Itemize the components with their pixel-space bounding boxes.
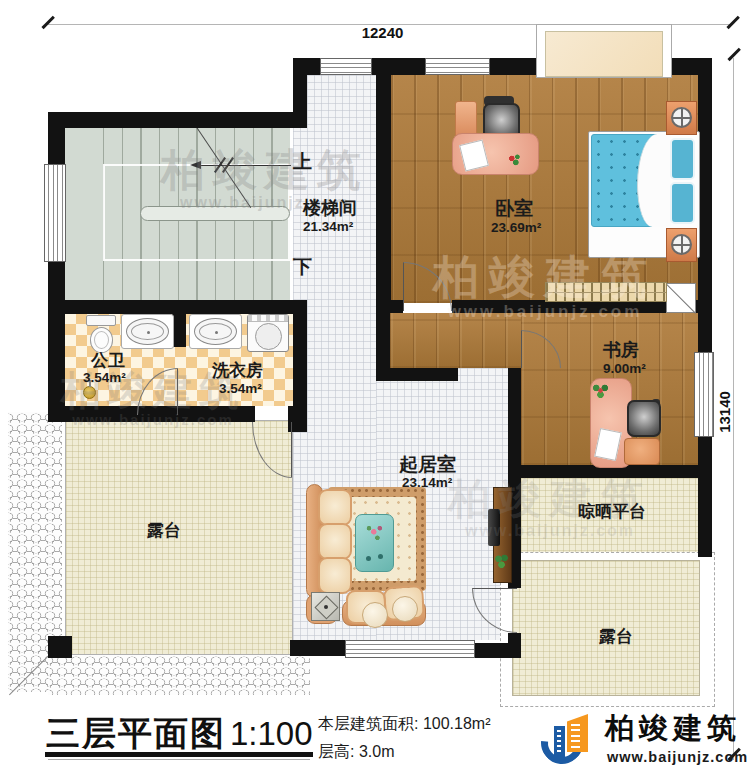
dimension-label-top: 12240 (345, 25, 420, 41)
wall (293, 58, 307, 118)
dimension-line-right (733, 58, 734, 760)
toilet-bowl (90, 327, 113, 353)
room-area-study: 9.00m² (603, 362, 646, 376)
brand-website: www.baijunjz.com (607, 750, 748, 765)
bathroom-sink (126, 318, 169, 345)
building-area-text: 本层建筑面积: 100.18m² (318, 716, 490, 732)
room-area-stairwell: 21.34m² (303, 220, 353, 234)
room-label-living: 起居室 (399, 455, 456, 474)
bay-window-floor (545, 31, 663, 77)
window (694, 352, 714, 437)
brand-name: 柏竣建筑 (605, 714, 741, 743)
window (320, 58, 372, 75)
floor-height-text: 层高: 3.0m (318, 744, 394, 760)
room-label-bedroom: 卧室 (495, 199, 533, 218)
wall (48, 112, 307, 128)
dimension-tick (727, 48, 740, 61)
roof-shingles-bottom (48, 655, 310, 695)
coffee-table (355, 514, 394, 572)
sink-drain (147, 331, 150, 334)
closet-door-leaf (666, 284, 696, 314)
dimension-tick (41, 16, 54, 29)
window (345, 640, 475, 658)
wall (293, 300, 307, 432)
wall (48, 112, 65, 166)
stair-up-label: 上 (293, 152, 312, 171)
wall (698, 58, 712, 314)
wall (376, 368, 458, 381)
logo-glyph (541, 708, 601, 770)
wall (376, 300, 403, 313)
floorplan-canvas: 12240 13140 (0, 0, 750, 781)
corridor-floor (390, 313, 521, 368)
round-pillow (362, 602, 388, 628)
washing-machine (247, 314, 289, 352)
room-label-laundry: 洗衣房 (212, 362, 263, 379)
wall (698, 478, 712, 557)
tv (488, 509, 500, 546)
wall (508, 368, 521, 470)
room-area-living: 23.14m² (402, 476, 452, 490)
wall (48, 314, 65, 420)
room-label-drying-platform: 晾晒平台 (578, 503, 646, 520)
wall (475, 643, 521, 658)
sofa-cushion (318, 523, 352, 560)
table-item-dot (378, 554, 383, 559)
wall (290, 640, 345, 656)
toilet-bowl-inner (94, 331, 109, 349)
room-label-study: 书房 (603, 341, 639, 359)
table-item-dot (366, 556, 371, 561)
window (44, 164, 66, 262)
title-underline-thick (45, 752, 313, 757)
sink-drain (215, 331, 218, 334)
floor-lamp (311, 592, 340, 621)
room-area-bedroom: 23.69m² (491, 221, 541, 235)
round-pillow (392, 596, 418, 622)
logo-building-orange-icon (567, 714, 588, 752)
logo-building-windows (557, 730, 561, 754)
terrace-corner-post (48, 636, 72, 658)
wall (172, 313, 186, 347)
dimension-tick (726, 16, 739, 29)
plan-title-scale: 1:100 (230, 715, 313, 752)
washer-drum (255, 323, 282, 350)
stair-rail (140, 206, 290, 221)
plan-title-text: 三层平面图 (46, 714, 226, 752)
cabinet-plant (494, 552, 509, 569)
study-chair (627, 400, 661, 437)
wall (376, 58, 391, 313)
room-label-terrace-left: 露台 (147, 522, 181, 539)
sofa-cushion (318, 489, 352, 526)
floor-drain-icon (83, 386, 96, 399)
stair-direction-arrow (190, 161, 201, 169)
lamp-bulb (324, 605, 328, 609)
room-area-laundry: 3.54m² (219, 382, 262, 396)
wall (698, 314, 712, 352)
room-label-terrace-right: 露台 (599, 628, 633, 645)
wardrobe-rod (546, 292, 666, 293)
room-label-bathroom: 公卫 (91, 352, 125, 369)
study-side-table (624, 438, 660, 465)
table-lamp-icon (671, 107, 692, 128)
closet-door (666, 283, 696, 313)
stair-direction-line (201, 165, 291, 166)
plan-title: 三层平面图1:100 (46, 711, 313, 757)
dimension-label-right: 13140 (717, 381, 733, 443)
desk-plant (592, 382, 609, 399)
bed-pillow (670, 138, 695, 180)
table-lamp-icon (671, 234, 692, 255)
sofa-cushion (318, 557, 352, 594)
wall (490, 58, 540, 75)
wardrobe (545, 282, 667, 302)
room-label-stairwell: 楼梯间 (303, 199, 357, 217)
logo-building-blue-icon (554, 726, 565, 758)
lamp-cross-line (681, 109, 683, 126)
brand-logo: 柏竣建筑 www.baijunjz.com (541, 708, 746, 772)
wall (48, 300, 307, 314)
bed-sheet-fold (637, 134, 671, 227)
bed-pillow (670, 182, 695, 224)
title-underline-thin (48, 759, 310, 760)
room-area-bathroom: 3.54m² (83, 371, 126, 385)
desk-flower (507, 152, 523, 168)
toilet-tank (86, 315, 116, 326)
laundry-sink (194, 318, 237, 345)
washer-control-panel (248, 315, 288, 322)
logo-building-windows (571, 724, 580, 748)
window (425, 58, 490, 75)
table-flower-decor (363, 521, 387, 545)
lamp-cross-line (681, 236, 683, 253)
stair-down-label: 下 (293, 257, 312, 276)
